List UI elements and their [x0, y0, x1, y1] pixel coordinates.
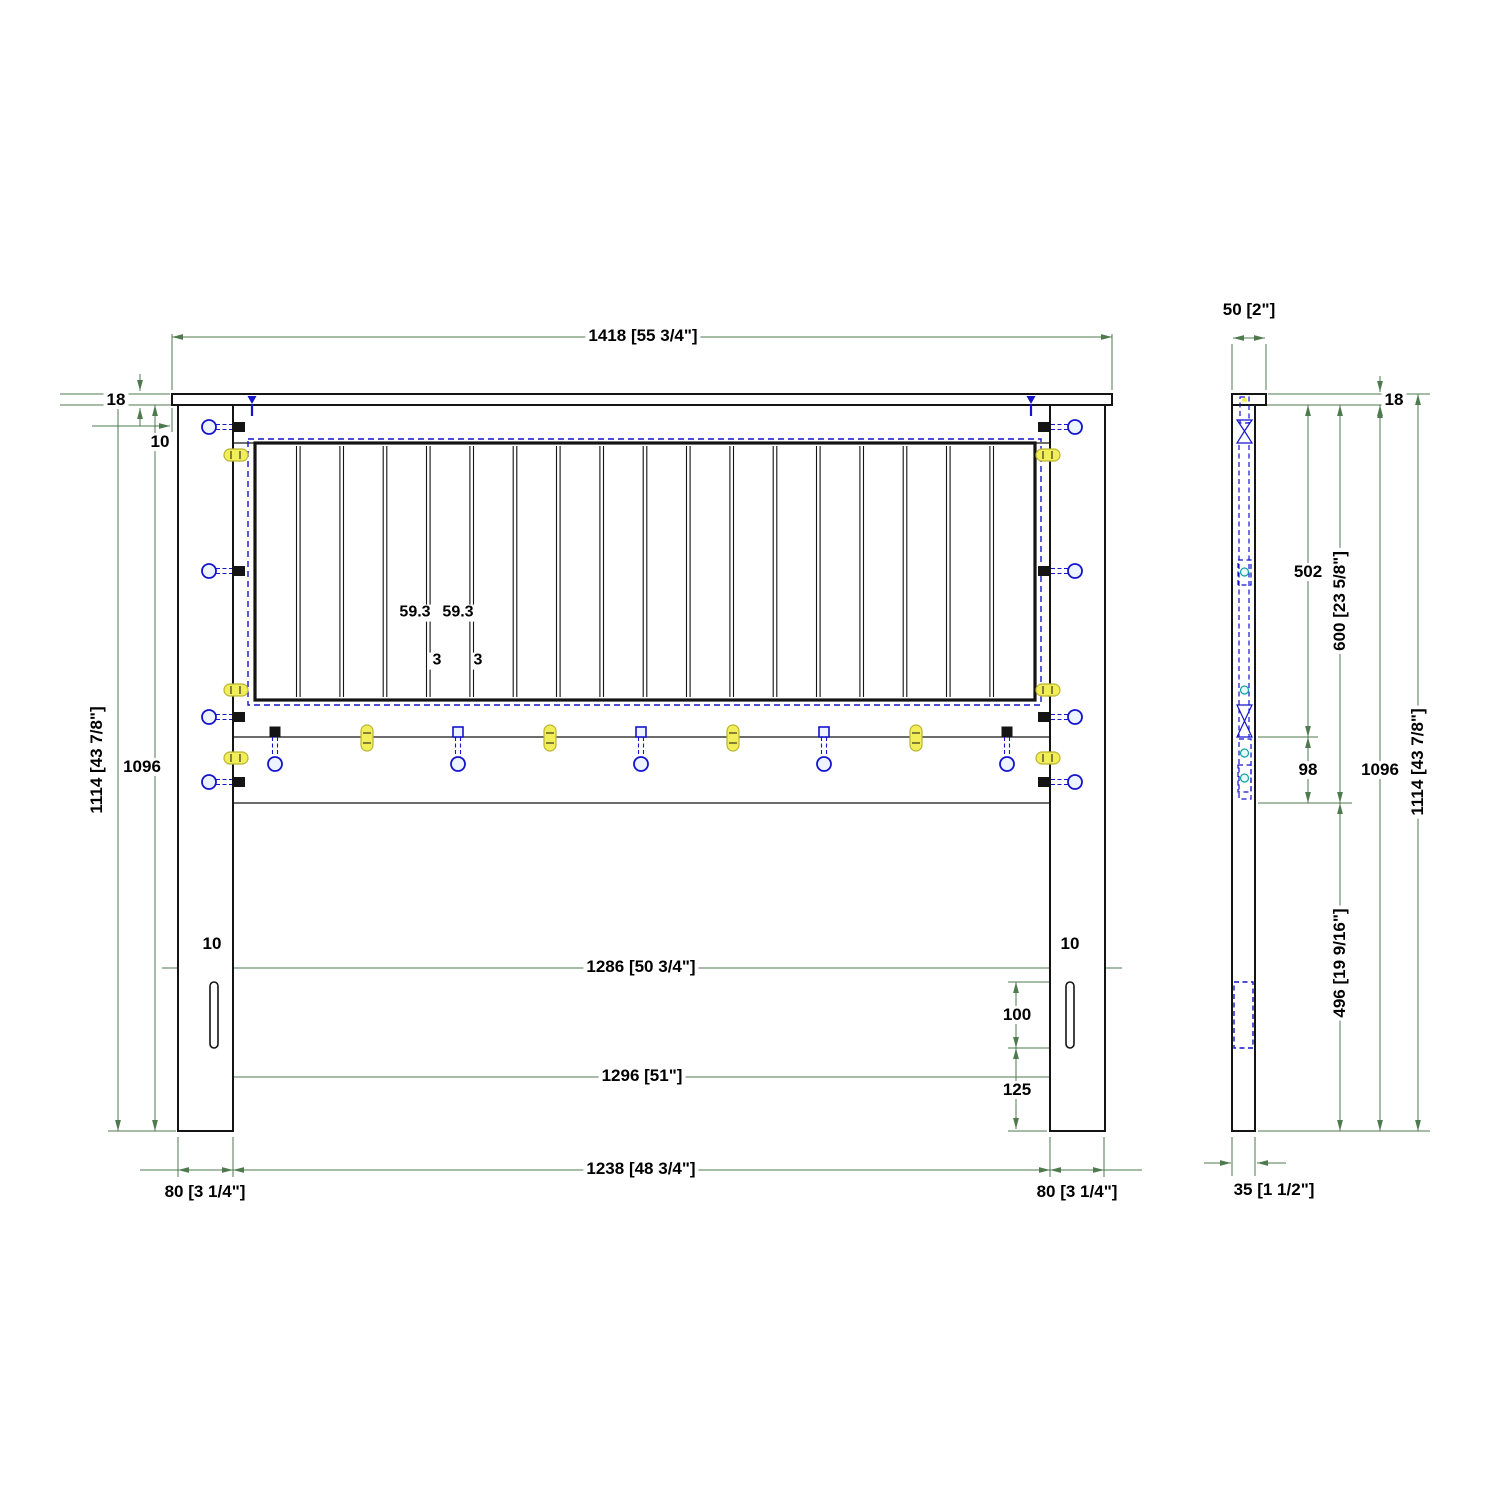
dowel-icon: [910, 725, 922, 751]
dowel-end-icon: [1241, 749, 1249, 757]
side-extension-lines: [1232, 344, 1430, 1176]
bolt-icon: [634, 727, 648, 771]
front-left-post: [178, 405, 233, 1131]
front-top-cap: [172, 394, 1112, 405]
dim-slot-inner-span: 1286 [50 3/4"]: [583, 958, 698, 976]
dim-front-overall-width: 1418 [55 3/4"]: [585, 327, 700, 345]
dim-side-top-to-rail: 502: [1291, 563, 1325, 581]
dim-side-post-height: 1096: [1358, 761, 1402, 779]
dim-side-overall-height: 1114 [43 7/8"]: [1409, 705, 1427, 818]
dowel-icon: [224, 684, 248, 696]
dim-right-post-width: 80 [3 1/4"]: [1034, 1183, 1121, 1201]
left-mounting-slot: [210, 982, 218, 1048]
bolt-icon: [268, 727, 282, 771]
dowel-icon: [1242, 398, 1247, 403]
dim-left-slot-width: 10: [200, 935, 225, 953]
dowel-end-icon: [1241, 686, 1249, 694]
dowel-end-icon: [1241, 774, 1249, 782]
headboard-side-view: [1204, 338, 1430, 1176]
dowel-icon: [224, 752, 248, 764]
dowel-icon: [544, 725, 556, 751]
dim-posts-inner-span: 1238 [48 3/4"]: [583, 1160, 698, 1178]
front-right-post: [1050, 405, 1105, 1131]
right-mounting-slot: [1066, 982, 1074, 1048]
bolt-icon: [451, 727, 465, 771]
drawing-linework: [0, 0, 1500, 1500]
dim-side-cap-thickness: 18: [1382, 391, 1407, 409]
rail-bolts: [268, 727, 1014, 771]
dim-slot-center-span: 1296 [51"]: [599, 1067, 686, 1085]
dowel-end-icon: [1241, 568, 1249, 576]
dim-front-post-height: 1096: [120, 758, 164, 776]
dim-left-post-width: 80 [3 1/4"]: [162, 1183, 249, 1201]
dowel-icon: [1036, 752, 1060, 764]
dim-front-cap-thickness: 18: [104, 391, 129, 409]
dim-side-rail-height: 98: [1296, 761, 1321, 779]
dim-slat-pitch-a: 59.3: [396, 605, 433, 622]
dim-side-rail-to-floor: 496 [19 9/16"]: [1331, 905, 1349, 1020]
dim-slat-gap-b: 3: [471, 653, 486, 670]
dim-front-cap-overhang: 10: [148, 433, 173, 451]
dim-side-post-depth: 35 [1 1/2"]: [1231, 1181, 1318, 1199]
bolt-icon: [817, 727, 831, 771]
technical-drawing-canvas: 1418 [55 3/4"] 18 10 1114 [43 7/8"] 1096…: [0, 0, 1500, 1500]
dowel-icon: [727, 725, 739, 751]
dim-side-cap-depth: 50 [2"]: [1220, 301, 1278, 319]
dim-right-slot-width: 10: [1058, 935, 1083, 953]
dowel-icon: [1036, 449, 1060, 461]
dim-slot-height: 100: [1000, 1006, 1034, 1024]
dowel-icon: [224, 449, 248, 461]
dim-side-top-to-rail-bottom: 600 [23 5/8"]: [1331, 548, 1349, 654]
side-post: [1232, 405, 1255, 1131]
dowel-icon: [1036, 684, 1060, 696]
dim-slat-gap-a: 3: [430, 653, 445, 670]
bolt-icon: [1000, 727, 1014, 771]
dim-slot-bottom-offset: 125: [1000, 1081, 1034, 1099]
headboard-front-view: [60, 334, 1142, 1177]
dim-front-overall-height: 1114 [43 7/8"]: [88, 703, 106, 816]
front-slat-panel: [255, 443, 1035, 700]
dim-slat-pitch-b: 59.3: [439, 605, 476, 622]
dowel-icon: [361, 725, 373, 751]
